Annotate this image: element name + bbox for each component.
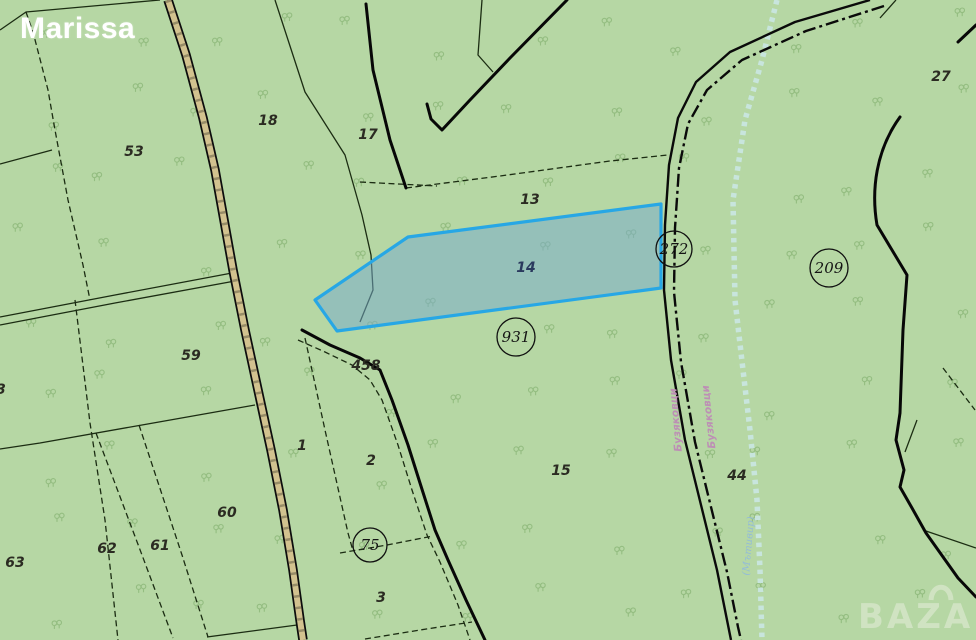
cadastral-map: 5318171314275912458606162633315449312722… bbox=[0, 0, 976, 640]
circled-parcel-label: 931 bbox=[502, 328, 531, 346]
circled-parcel-label: 209 bbox=[814, 259, 844, 277]
parcel-label: 60 bbox=[217, 505, 237, 521]
parcel-label: 27 bbox=[931, 69, 951, 85]
parcel-label: 3 bbox=[0, 382, 6, 398]
parcel-label: 61 bbox=[150, 538, 169, 554]
parcel-label: 59 bbox=[181, 348, 201, 364]
parcel-label: 44 bbox=[726, 468, 746, 484]
map-viewport: 5318171314275912458606162633315449312722… bbox=[0, 0, 976, 640]
parcel-label: 3 bbox=[376, 590, 386, 606]
parcel-label: 62 bbox=[97, 541, 116, 557]
circled-parcel-label: 272 bbox=[659, 240, 689, 258]
parcel-label: 458 bbox=[350, 358, 380, 374]
circled-parcel-label: 75 bbox=[360, 536, 379, 554]
watermark-marissa: Marissa bbox=[20, 12, 135, 46]
parcel-label: 14 bbox=[516, 260, 535, 276]
bazar-logo-text: BAZAR bbox=[858, 597, 976, 637]
parcel-label: 15 bbox=[551, 463, 571, 479]
map-background bbox=[0, 0, 976, 640]
parcel-label: 18 bbox=[258, 113, 278, 129]
parcel-label: 13 bbox=[520, 192, 539, 208]
parcel-label: 63 bbox=[5, 555, 24, 571]
parcel-label: 53 bbox=[124, 144, 143, 160]
parcel-label: 17 bbox=[358, 127, 378, 143]
parcel-label: 1 bbox=[297, 438, 307, 454]
parcel-label: 2 bbox=[366, 453, 376, 469]
